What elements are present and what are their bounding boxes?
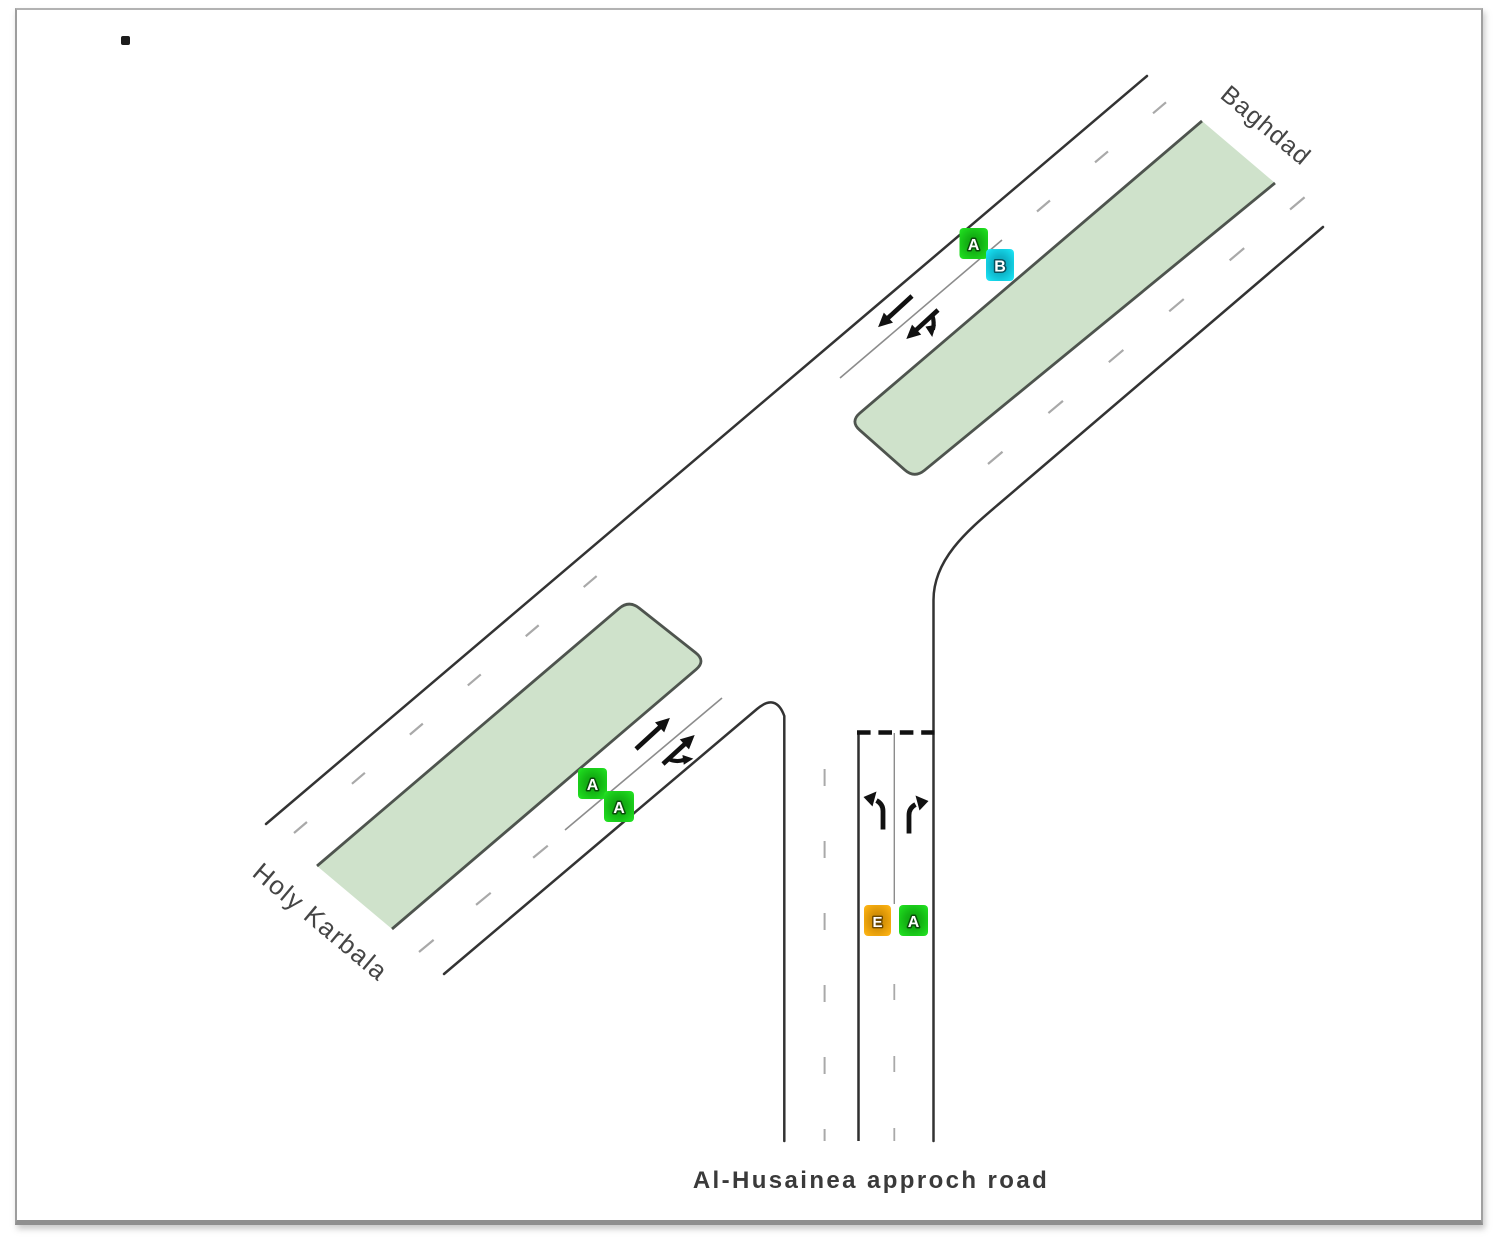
- svg-text:A: A: [613, 800, 625, 817]
- svg-text:A: A: [908, 914, 920, 931]
- svg-text:B: B: [994, 259, 1006, 276]
- svg-text:E: E: [872, 914, 882, 931]
- svg-text:A: A: [968, 237, 980, 254]
- svg-text:Al-Husainea approch road: Al-Husainea approch road: [693, 1167, 1049, 1194]
- svg-text:A: A: [587, 777, 599, 794]
